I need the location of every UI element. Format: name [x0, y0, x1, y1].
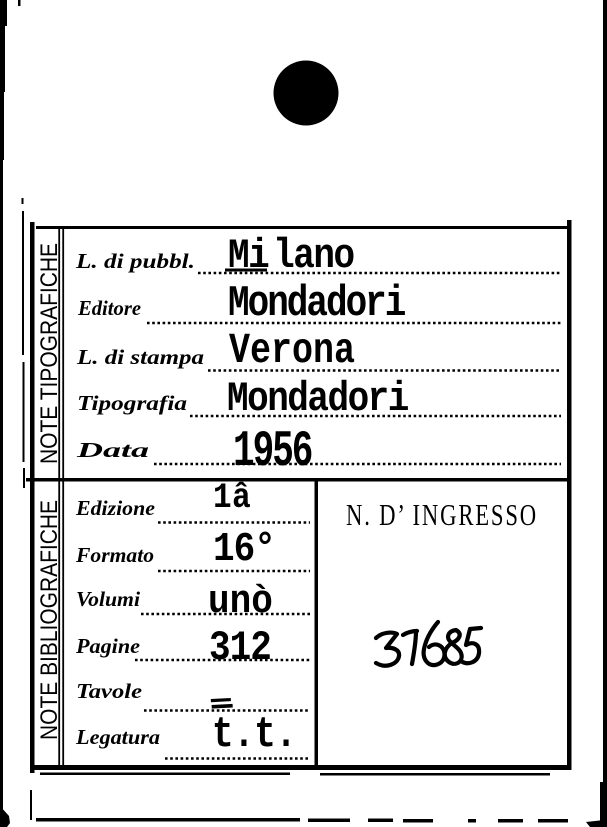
svg-text:NOTE BIBLIOGRAFICHE: NOTE BIBLIOGRAFICHE: [36, 500, 63, 740]
svg-text:N. D’ INGRESSO: N. D’ INGRESSO: [346, 497, 538, 532]
svg-text:L. di stampa: L. di stampa: [76, 345, 204, 369]
svg-text:1â: 1â: [213, 478, 251, 519]
svg-text:1956: 1956: [233, 423, 312, 481]
svg-text:unò: unò: [208, 580, 273, 625]
svg-text:16°: 16°: [213, 527, 275, 572]
svg-text:L. di pubbl.: L. di pubbl.: [75, 249, 195, 273]
svg-text:Formato: Formato: [75, 543, 154, 567]
svg-text:Tipografia: Tipografia: [77, 391, 187, 415]
svg-text:Mondadori: Mondadori: [227, 376, 408, 423]
svg-text:Tavole: Tavole: [76, 679, 142, 703]
svg-text:Mondadori: Mondadori: [228, 280, 405, 329]
svg-text:Edizione: Edizione: [75, 496, 155, 520]
svg-text:Volumi: Volumi: [76, 587, 140, 611]
svg-text:Legatura: Legatura: [75, 725, 160, 749]
svg-text:Milano: Milano: [228, 233, 354, 280]
svg-text:312: 312: [209, 625, 271, 672]
svg-text:t.t.: t.t.: [212, 711, 296, 760]
svg-text:Pagine: Pagine: [75, 634, 140, 658]
svg-text:Data: Data: [75, 438, 149, 462]
svg-text:Editore: Editore: [77, 296, 141, 320]
svg-text:Verona: Verona: [229, 326, 355, 375]
svg-text:NOTE TIPOGRAFICHE: NOTE TIPOGRAFICHE: [36, 243, 63, 464]
